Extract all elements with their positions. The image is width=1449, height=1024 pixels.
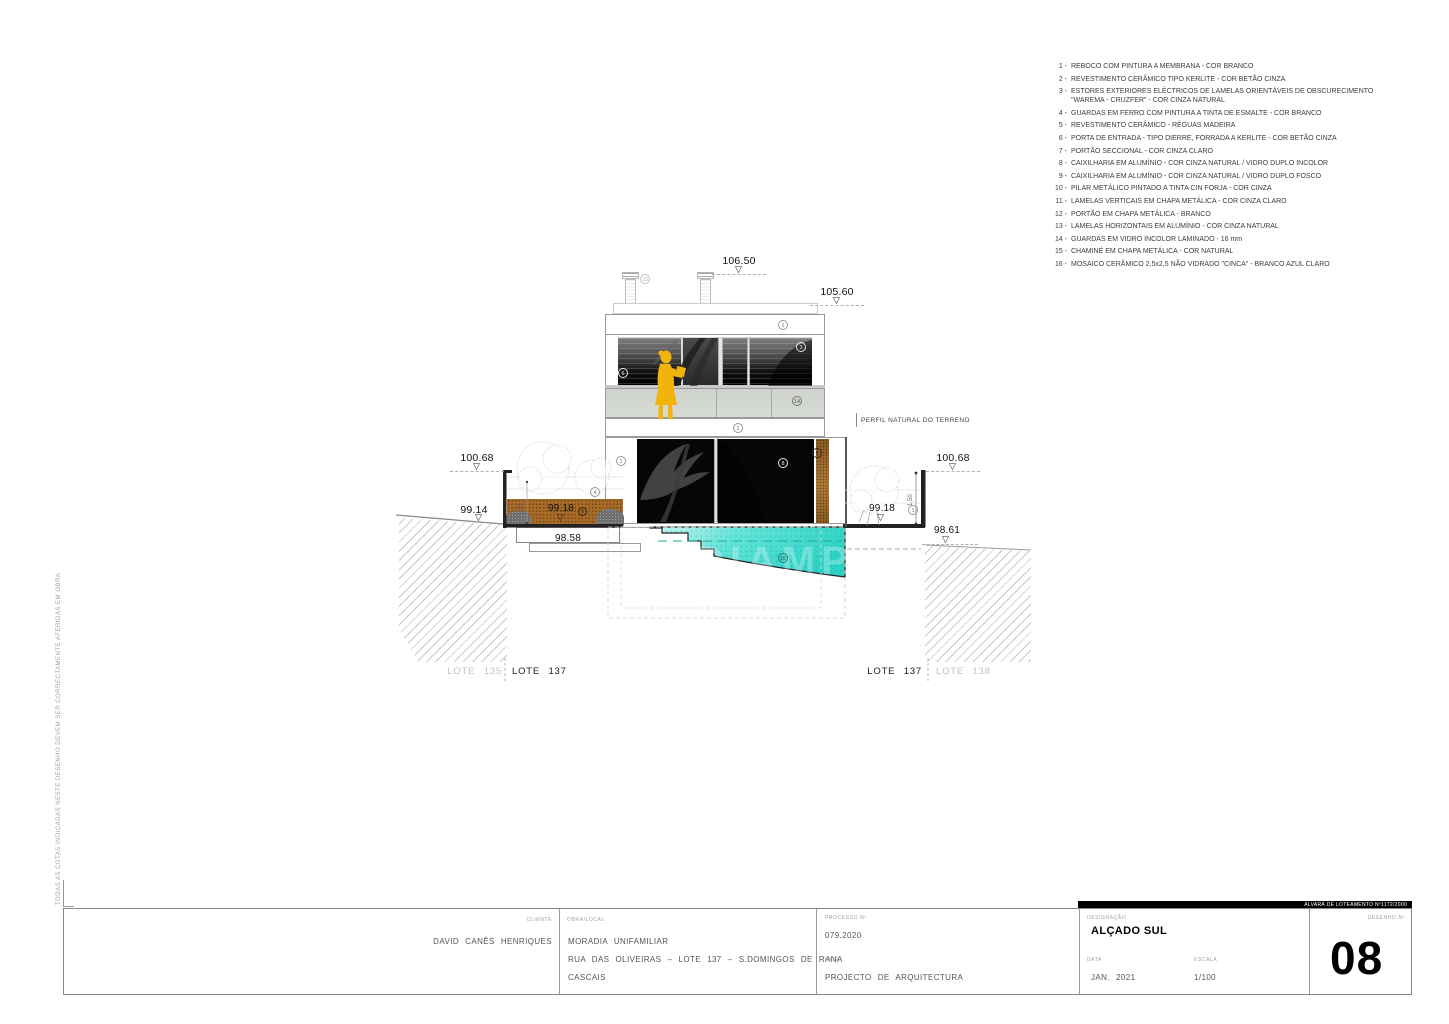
legend-item: 6 - PORTA DE ENTRADA - TIPO DIERRE, FORR… [1052,134,1398,143]
chimney-right [700,279,711,304]
callout-wood-cladding: 5 [812,448,822,458]
dim-1-50-right: 1,50 [908,480,914,506]
watermark-text: DIAMP [695,539,854,583]
lot-137-label-left: LOTE 137 [512,666,567,677]
legend-item: 4 - GUARDAS EM FERRO COM PINTURA A TINTA… [1052,109,1398,118]
legend-item-number: 15 - [1052,247,1067,256]
legend-item-text: GUARDAS EM VIDRO INCOLOR LAMINADO - 16 m… [1071,235,1398,244]
sheet-number-label: DESENHO Nº [1309,915,1405,921]
date-value: JAN. 2021 [1091,973,1135,982]
legend-item-number: 2 - [1052,75,1067,84]
lower-floor-wall [605,437,847,525]
roof-band [605,314,825,335]
legend-item-number: 1 - [1052,62,1067,71]
callout-site-wall: 1 [908,505,918,515]
legend-item-number: 6 - [1052,134,1067,143]
rock-right [596,509,624,526]
legend-item-number: 14 - [1052,235,1067,244]
level-99-14: 99.14 [450,504,498,516]
designation-label: DESIGNAÇÃO [1087,915,1126,921]
site-label: OBRA/LOCAL [567,917,605,923]
terrain-profile-label: PERFIL NATURAL DO TERRENO [861,417,970,424]
legend-item-number: 4 - [1052,109,1067,118]
dim-line-right [915,472,918,526]
chimney-left [625,279,636,304]
callout-mid-band: 1 [733,423,743,433]
titleblock-divider [1309,909,1310,994]
site-line2: RUA DAS OLIVEIRAS – LOTE 137 – S.DOMINGO… [568,955,843,964]
pool-water [650,527,845,577]
site-line1: MORADIA UNIFAMILIAR [568,937,668,946]
level-marker-icon: ▽ [833,296,840,305]
legend-item: 16 - MOSAICO CERÂMICO 2,5x2,5 NÃO VIDRAD… [1052,260,1398,269]
level-marker-icon: ▽ [877,513,884,522]
callout-chimney: 15 [640,274,650,284]
legend-item-number: 10 - [1052,184,1067,193]
phase-value: PROJECTO DE ARQUITECTURA [825,973,963,982]
callout-lower-wall: 1 [616,456,626,466]
level-marker-icon: ▽ [473,462,480,471]
rock-left [505,511,531,526]
lot-137-label-right: LOTE 137 [858,666,922,677]
callout-glass-guard: 14 [792,396,802,406]
legend-item-number: 3 - [1052,87,1067,105]
legend-item: 5 - REVESTIMENTO CERÂMICO - RÉGUAS MADEI… [1052,121,1398,130]
callout-pool-mosaic: 16 [778,553,788,563]
legend-item-number: 12 - [1052,210,1067,219]
materials-legend: 1 - REBOCO COM PINTURA A MEMBRANA - COR … [1052,62,1398,273]
lower-window-2 [718,439,814,524]
roof-parapet [613,303,818,314]
legend-item-text: LAMELAS VERTICAIS EM CHAPA METÁLICA - CO… [1071,197,1398,206]
level-dash [712,274,766,275]
process-value: 079.2020 [825,931,862,940]
legend-item-text: REVESTIMENTO CERÂMICO - RÉGUAS MADEIRA [1071,121,1398,130]
level-dash [926,471,980,472]
chimney-cap-left [622,272,639,279]
titleblock-divider [559,909,560,994]
drawing-sheet: 1 - REBOCO COM PINTURA A MEMBRANA - COR … [0,0,1449,1024]
title-block: CLIENTE DAVID CANÊS HENRIQUES OBRA/LOCAL… [63,908,1412,995]
designation-value: ALÇADO SUL [1091,925,1167,937]
legend-item-text: GUARDAS EM FERRO COM PINTURA A TINTA DE … [1071,109,1398,118]
legend-item-number: 13 - [1052,222,1067,231]
legend-item-number: 9 - [1052,172,1067,181]
level-marker-icon: ▽ [475,513,482,522]
legend-item-number: 5 - [1052,121,1067,130]
legend-item: 12 - PORTÃO EM CHAPA METÁLICA - BRANCO [1052,210,1398,219]
callout-planter-wood: 5 [578,507,587,516]
mid-slab-band [605,418,825,437]
legend-item-text: CHAMINÉ EM CHAPA METÁLICA - COR NATURAL [1071,247,1398,256]
callout-roof-band: 1 [778,320,788,330]
upper-window-shutter-1 [618,338,681,385]
legend-item-text: REBOCO COM PINTURA A MEMBRANA - COR BRAN… [1071,62,1398,71]
guardrail-post [771,389,772,417]
legend-item: 10 - PILAR METÁLICO PINTADO A TINTA CIN … [1052,184,1398,193]
level-dash [922,544,978,545]
legend-item: 2 - REVESTIMENTO CERÂMICO TIPO KERLITE -… [1052,75,1398,84]
bush-left [517,442,611,494]
frame-corner [63,880,74,907]
guardrail-post [661,389,662,417]
upper-window-glass [683,338,718,385]
legend-item-text: REVESTIMENTO CERÂMICO TIPO KERLITE - COR… [1071,75,1398,84]
legend-item-text: LAMELAS HORIZONTAIS EM ALUMÍNIO - COR CI… [1071,222,1398,231]
sheet-number: 08 [1330,931,1383,985]
legend-item-text: CAIXILHARIA EM ALUMÍNIO - COR CINZA NATU… [1071,159,1398,168]
scale-label: ESCALA [1194,957,1217,963]
pool: DIAMP [650,527,854,583]
upper-window-row [618,337,812,386]
legend-item-number: 11 - [1052,197,1067,206]
terrace-slab [616,523,847,528]
scale-value: 1/100 [1194,973,1216,982]
basement-outline-inner [621,527,821,608]
legend-item-text: PILAR METÁLICO PINTADO A TINTA CIN FORJA… [1071,184,1398,193]
titleblock-divider [1079,909,1080,994]
callout-estores: 3 [796,342,806,352]
level-dash [810,305,864,306]
ground-hatch-left [399,514,507,662]
level-marker-icon: ▽ [942,535,949,544]
legend-item-number: 8 - [1052,159,1067,168]
legend-item-text: CAIXILHARIA EM ALUMÍNIO - COR CINZA NATU… [1071,172,1398,181]
client-value: DAVID CANÊS HENRIQUES [302,937,552,946]
date-label: DATA [1087,957,1102,963]
legend-item: 3 - ESTORES EXTERIORES ELÉCTRICOS DE LAM… [1052,87,1398,105]
phase-label: FASE [825,957,840,963]
titleblock-divider [816,909,817,994]
lot-135-label: LOTE 135 [440,666,502,677]
process-label: PROCESSO Nº [825,915,867,921]
legend-item: 15 - CHAMINÉ EM CHAPA METÁLICA - COR NAT… [1052,247,1398,256]
legend-item: 13 - LAMELAS HORIZONTAIS EM ALUMÍNIO - C… [1052,222,1398,231]
entry-steps-upper: 98.58 [516,527,620,543]
legend-item: 14 - GUARDAS EM VIDRO INCOLOR LAMINADO -… [1052,235,1398,244]
level-dash [450,471,504,472]
callout-window: 8 [778,458,788,468]
legend-item-number: 16 - [1052,260,1067,269]
site-line3: CASCAIS [568,973,606,982]
legend-item-text: MOSAICO CERÂMICO 2,5x2,5 NÃO VIDRADO "CI… [1071,260,1398,269]
legend-item: 11 - LAMELAS VERTICAIS EM CHAPA METÁLICA… [1052,197,1398,206]
lot-138-label: LOTE 138 [936,666,991,677]
level-marker-icon: ▽ [949,462,956,471]
level-marker-icon: ▽ [557,513,564,522]
guardrail-post [716,389,717,417]
ground-hatch-right [925,544,1031,662]
callout-entry-door: 6 [618,368,628,378]
legend-item: 9 - CAIXILHARIA EM ALUMÍNIO - COR CINZA … [1052,172,1398,181]
dim-50-left: 50 [518,490,524,510]
basement-outline-outer [608,527,845,618]
legend-item-text: PORTÃO SECCIONAL - COR CINZA CLARO [1071,147,1398,156]
level-marker-icon: ▽ [735,265,742,274]
legend-item: 7 - PORTÃO SECCIONAL - COR CINZA CLARO [1052,147,1398,156]
terrain-profile-tick [856,413,857,427]
entry-steps-lower [529,543,641,552]
upper-window-shutter-2 [723,338,747,385]
legend-item: 8 - CAIXILHARIA EM ALUMÍNIO - COR CINZA … [1052,159,1398,168]
lower-window-1 [637,439,714,524]
legend-item-text: PORTA DE ENTRADA - TIPO DIERRE, FORRADA … [1071,134,1398,143]
legend-item-text: ESTORES EXTERIORES ELÉCTRICOS DE LAMELAS… [1071,87,1398,105]
side-note: TODAS AS COTAS INDICADAS NESTE DESENHO D… [56,573,62,905]
legend-item-text: PORTÃO EM CHAPA METÁLICA - BRANCO [1071,210,1398,219]
legend-item: 1 - REBOCO COM PINTURA A MEMBRANA - COR … [1052,62,1398,71]
client-label: CLIENTE [464,917,552,923]
legend-item-number: 7 - [1052,147,1067,156]
callout-iron-guard: 4 [590,487,600,497]
